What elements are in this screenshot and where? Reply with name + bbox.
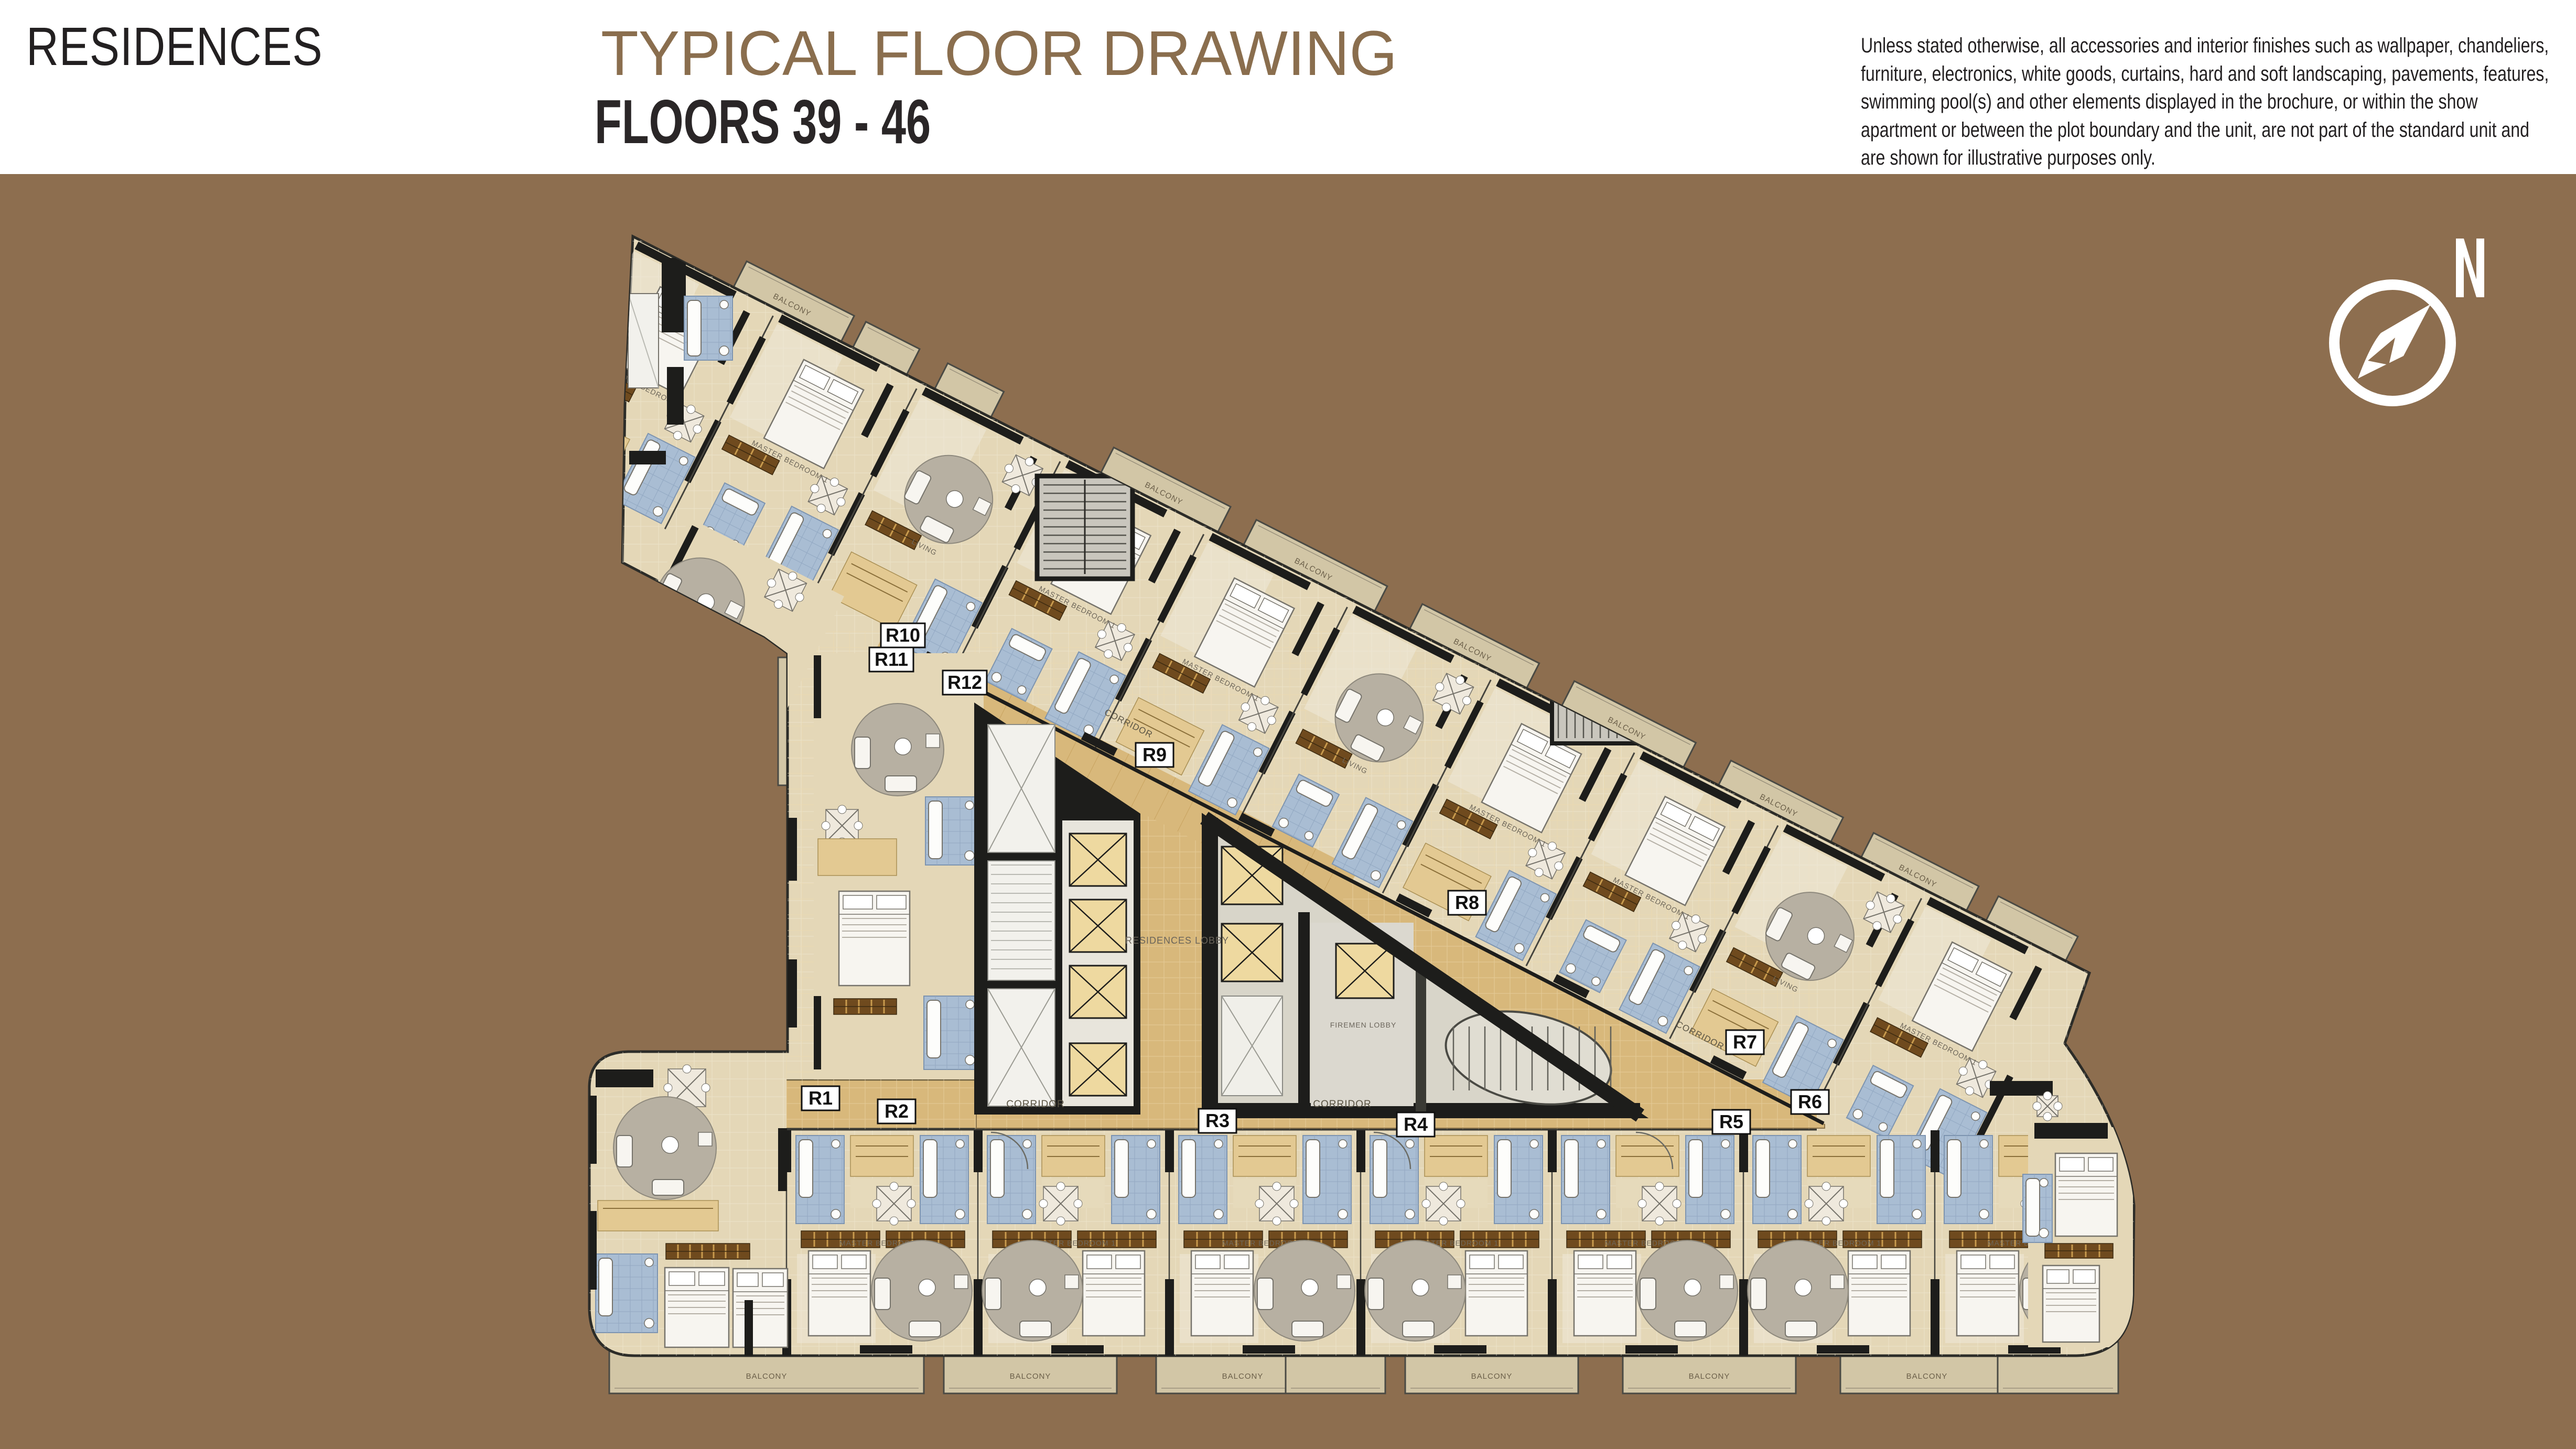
svg-text:CORRIDOR: CORRIDOR [1006, 1099, 1064, 1110]
svg-text:R8: R8 [1455, 892, 1479, 913]
svg-text:FIREMEN LOBBY: FIREMEN LOBBY [1330, 1021, 1397, 1029]
svg-text:R6: R6 [1798, 1091, 1822, 1112]
svg-text:BALCONY: BALCONY [1222, 1372, 1264, 1381]
svg-text:RESIDENCES LOBBY: RESIDENCES LOBBY [1125, 935, 1229, 946]
svg-text:R3: R3 [1205, 1110, 1230, 1131]
svg-text:R4: R4 [1404, 1113, 1428, 1135]
svg-text:BALCONY: BALCONY [1689, 1372, 1730, 1381]
svg-text:R7: R7 [1733, 1031, 1757, 1053]
svg-text:R1: R1 [809, 1087, 833, 1109]
svg-text:R9: R9 [1143, 744, 1167, 765]
svg-text:CORRIDOR: CORRIDOR [1313, 1099, 1371, 1110]
svg-text:R2: R2 [885, 1100, 909, 1122]
svg-text:R12: R12 [947, 672, 982, 693]
svg-text:BALCONY: BALCONY [1471, 1372, 1513, 1381]
svg-text:R5: R5 [1719, 1111, 1743, 1132]
svg-text:R10: R10 [886, 624, 920, 646]
svg-text:R11: R11 [875, 648, 908, 670]
svg-text:BALCONY: BALCONY [1010, 1372, 1051, 1381]
svg-text:BALCONY: BALCONY [746, 1372, 788, 1381]
svg-text:BALCONY: BALCONY [1906, 1372, 1948, 1381]
